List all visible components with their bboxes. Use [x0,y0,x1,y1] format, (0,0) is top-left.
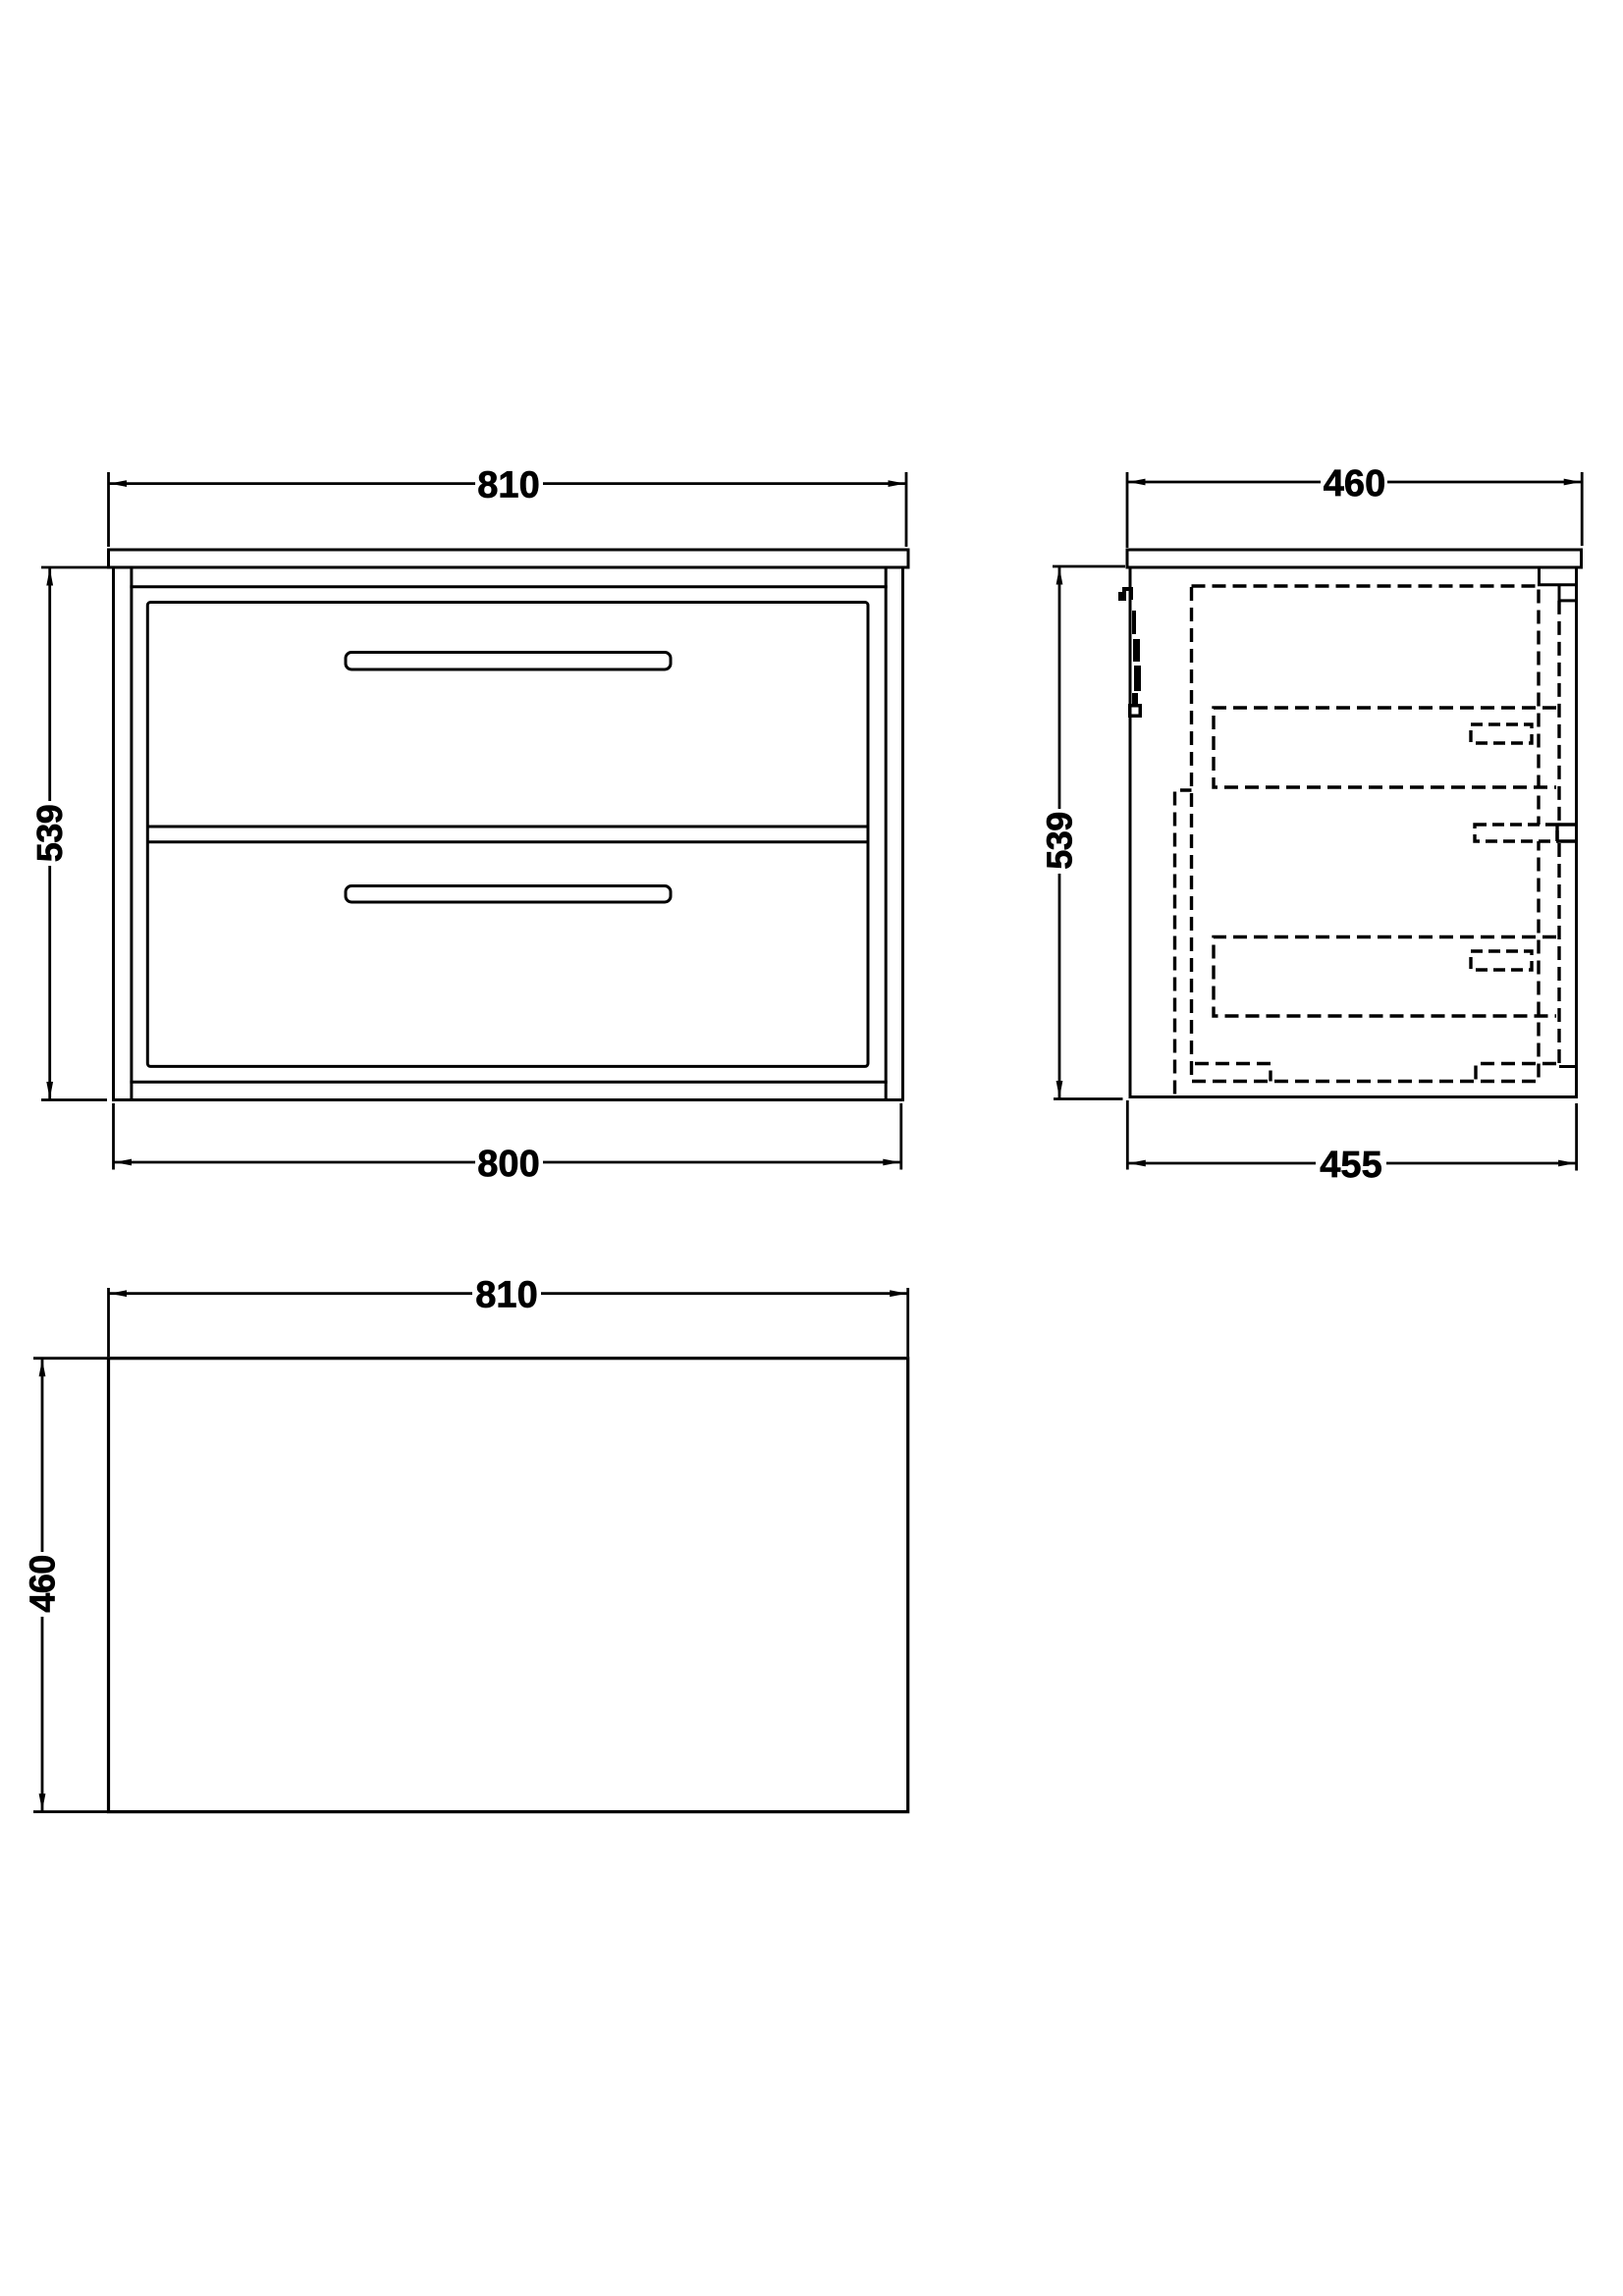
svg-text:810: 810 [475,1275,537,1316]
svg-text:539: 539 [29,805,70,863]
svg-text:460: 460 [23,1555,63,1613]
svg-text:810: 810 [477,465,539,507]
svg-text:455: 455 [1320,1145,1381,1186]
svg-text:800: 800 [477,1144,539,1185]
svg-text:460: 460 [1324,463,1385,505]
svg-text:539: 539 [1040,812,1080,870]
